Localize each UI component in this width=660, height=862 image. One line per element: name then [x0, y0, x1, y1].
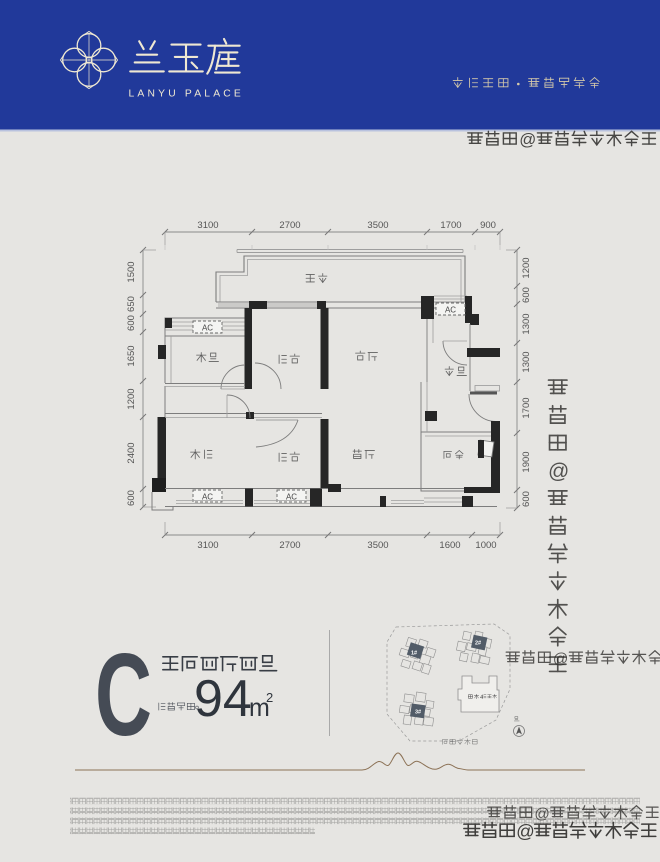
- svg-text:2400: 2400: [126, 442, 137, 463]
- svg-text:1200: 1200: [126, 388, 137, 409]
- svg-text:600: 600: [126, 490, 137, 506]
- svg-text:3500: 3500: [367, 540, 388, 551]
- svg-text:@: @: [534, 805, 549, 822]
- svg-text:2700: 2700: [279, 540, 300, 551]
- svg-text:1700: 1700: [440, 220, 461, 231]
- svg-text:1300: 1300: [521, 313, 532, 334]
- svg-text:AC: AC: [445, 306, 456, 315]
- svg-text:2: 2: [266, 690, 273, 705]
- svg-text:3100: 3100: [197, 540, 218, 551]
- svg-text:1900: 1900: [521, 451, 532, 472]
- svg-text:94: 94: [194, 670, 252, 728]
- svg-text:600: 600: [521, 491, 532, 507]
- svg-text:600: 600: [126, 315, 137, 331]
- svg-text:1000: 1000: [475, 540, 496, 551]
- svg-text:LANYU PALACE: LANYU PALACE: [129, 89, 244, 100]
- svg-text:1500: 1500: [126, 261, 137, 282]
- svg-text:2#: 2#: [475, 641, 481, 647]
- svg-text:1600: 1600: [439, 540, 460, 551]
- svg-text:AC: AC: [202, 324, 213, 333]
- svg-text:@: @: [519, 130, 536, 149]
- svg-text:1300: 1300: [521, 351, 532, 372]
- svg-text:2700: 2700: [279, 220, 300, 231]
- svg-text:3100: 3100: [197, 220, 218, 231]
- svg-text:650: 650: [126, 296, 137, 312]
- svg-text:1200: 1200: [521, 257, 532, 278]
- svg-text:C: C: [95, 629, 152, 760]
- svg-text:@: @: [548, 460, 569, 483]
- svg-text:1700: 1700: [521, 397, 532, 418]
- svg-text:1#: 1#: [411, 651, 417, 657]
- svg-text:3500: 3500: [367, 220, 388, 231]
- svg-text:3#: 3#: [415, 710, 421, 716]
- svg-text:@: @: [553, 650, 568, 667]
- svg-text:4: 4: [480, 695, 483, 701]
- svg-text:1650: 1650: [126, 345, 137, 366]
- svg-text:900: 900: [480, 220, 496, 231]
- svg-text:@: @: [516, 821, 535, 842]
- svg-text:600: 600: [521, 287, 532, 303]
